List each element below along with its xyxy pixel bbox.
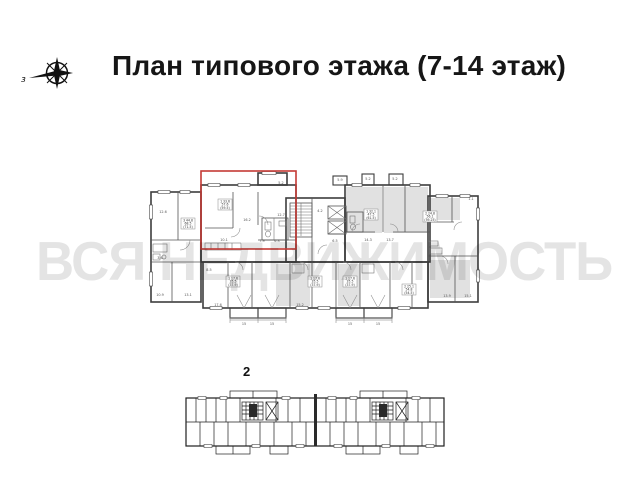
svg-text:5.2: 5.2 bbox=[278, 181, 283, 185]
svg-text:(37.9): (37.9) bbox=[310, 283, 319, 287]
svg-text:5.9: 5.9 bbox=[337, 178, 342, 182]
svg-text:(37.9): (37.9) bbox=[228, 283, 237, 287]
svg-text:4.2: 4.2 bbox=[317, 209, 322, 213]
svg-text:7.9: 7.9 bbox=[259, 239, 264, 243]
compass-west-label: з bbox=[21, 75, 26, 85]
svg-text:14.3: 14.3 bbox=[364, 238, 372, 242]
svg-text:6.3: 6.3 bbox=[274, 239, 279, 243]
svg-text:15: 15 bbox=[348, 322, 352, 326]
building-section-label: 2 bbox=[243, 364, 250, 379]
svg-text:8.5: 8.5 bbox=[206, 268, 211, 272]
svg-text:6.5: 6.5 bbox=[332, 239, 337, 243]
svg-text:(61.5): (61.5) bbox=[366, 216, 375, 220]
svg-text:16.2: 16.2 bbox=[243, 218, 251, 222]
svg-text:(59.25): (59.25) bbox=[424, 218, 435, 222]
svg-text:5.2: 5.2 bbox=[365, 177, 370, 181]
svg-text:10.1: 10.1 bbox=[220, 238, 228, 242]
svg-text:15: 15 bbox=[242, 322, 246, 326]
svg-text:(54.5): (54.5) bbox=[404, 291, 413, 295]
svg-text:12.6: 12.6 bbox=[159, 210, 167, 214]
compass-icon: з bbox=[21, 57, 73, 89]
svg-text:15.1: 15.1 bbox=[464, 294, 472, 298]
svg-text:15: 15 bbox=[270, 322, 274, 326]
svg-text:10.9: 10.9 bbox=[156, 293, 164, 297]
svg-text:15: 15 bbox=[376, 322, 380, 326]
svg-text:(59.5): (59.5) bbox=[220, 206, 229, 210]
svg-text:(37.9): (37.9) bbox=[345, 283, 354, 287]
svg-text:5.2: 5.2 bbox=[392, 177, 397, 181]
svg-text:15.2: 15.2 bbox=[296, 303, 304, 307]
svg-text:13.1: 13.1 bbox=[184, 293, 192, 297]
floorplan-canvas: з bbox=[0, 0, 631, 500]
svg-text:17.6: 17.6 bbox=[214, 303, 222, 307]
svg-text:(71.5): (71.5) bbox=[183, 225, 192, 229]
svg-text:12.7: 12.7 bbox=[277, 213, 285, 217]
overview-floorplan bbox=[186, 391, 444, 454]
svg-text:3.6: 3.6 bbox=[157, 256, 162, 260]
svg-text:1.1: 1.1 bbox=[468, 197, 473, 201]
svg-text:13.7: 13.7 bbox=[386, 238, 394, 242]
svg-text:13.9: 13.9 bbox=[443, 294, 451, 298]
main-floorplan: 3 44.868.5(71.5)1 33.657.6(59.5)1 32.147… bbox=[150, 171, 480, 326]
